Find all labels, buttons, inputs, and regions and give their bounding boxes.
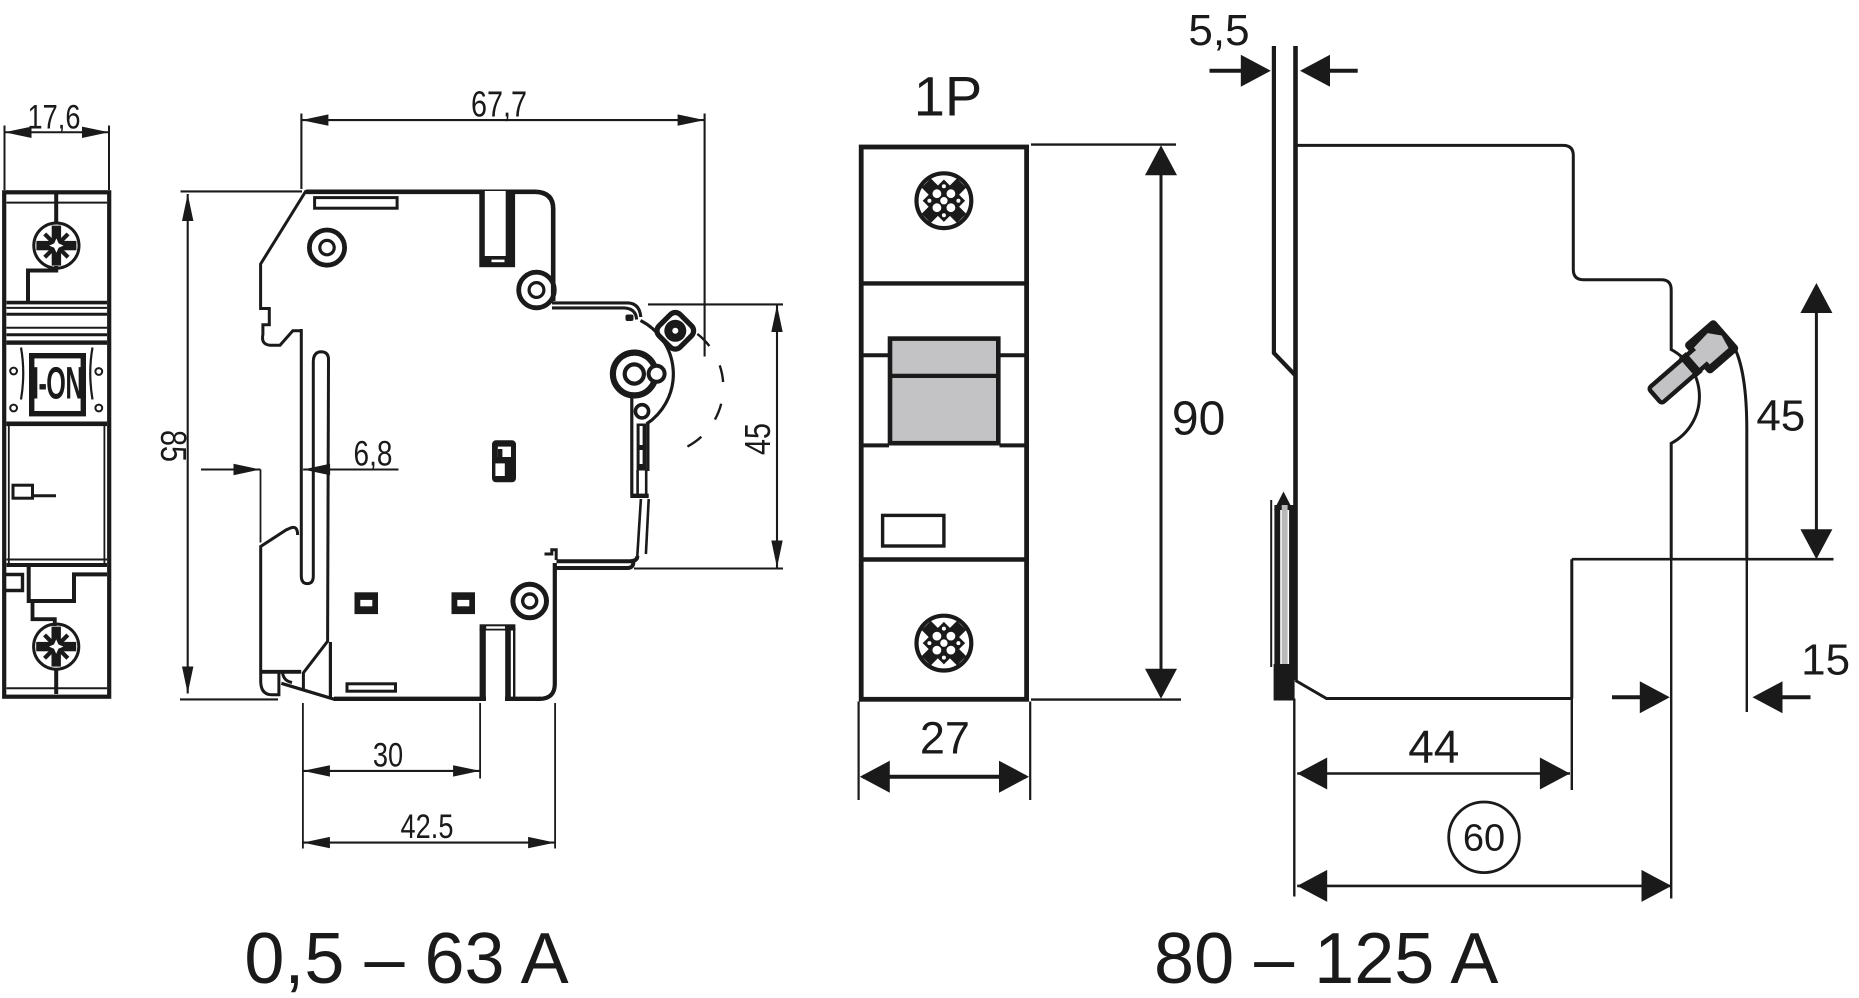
svg-text:42.5: 42.5 — [401, 807, 454, 846]
svg-text:27: 27 — [920, 712, 970, 763]
svg-text:90: 90 — [1172, 393, 1225, 446]
svg-text:30: 30 — [373, 736, 403, 775]
svg-text:85: 85 — [153, 430, 194, 462]
svg-text:1P: 1P — [914, 65, 983, 128]
svg-text:6,8: 6,8 — [354, 433, 393, 473]
svg-text:44: 44 — [1408, 721, 1459, 773]
svg-text:15: 15 — [1801, 636, 1850, 685]
svg-text:60: 60 — [1463, 818, 1505, 860]
svg-text:0,5 – 63 A: 0,5 – 63 A — [244, 919, 568, 998]
svg-text:67,7: 67,7 — [471, 83, 527, 124]
svg-text:17,6: 17,6 — [28, 98, 81, 137]
svg-text:I-ON: I-ON — [32, 358, 83, 409]
svg-text:5,5: 5,5 — [1188, 6, 1249, 55]
svg-text:80 – 125 A: 80 – 125 A — [1154, 919, 1498, 998]
svg-text:45: 45 — [737, 423, 778, 455]
svg-text:45: 45 — [1756, 392, 1805, 441]
